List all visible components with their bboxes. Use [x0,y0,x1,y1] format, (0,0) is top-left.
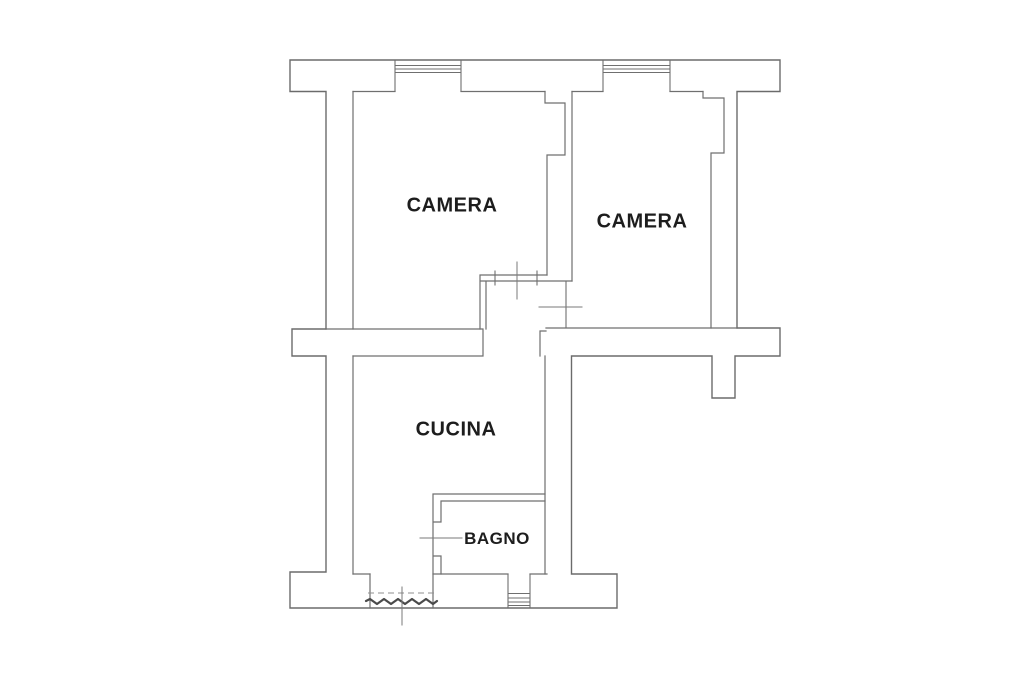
window-top-right-icon [603,60,670,92]
window-top-left-icon [395,60,461,92]
window-bottom-icon [508,574,530,608]
section-mark-icons [402,262,582,625]
room-label-cucina: CUCINA [416,419,497,442]
camera1-door-opening [495,271,537,285]
interior-walls [326,92,737,609]
room-label-bagno: BAGNO [464,529,530,549]
window-icons [395,60,670,608]
floorplan-drawing [0,0,1024,683]
exterior-walls [290,60,780,608]
room-label-camera-2: CAMERA [597,211,688,234]
room-label-camera-1: CAMERA [407,195,498,218]
camera2-door-opening [546,281,566,328]
door-symbols [495,271,566,328]
floorplan-canvas: CAMERA CAMERA CUCINA BAGNO [0,0,1024,683]
